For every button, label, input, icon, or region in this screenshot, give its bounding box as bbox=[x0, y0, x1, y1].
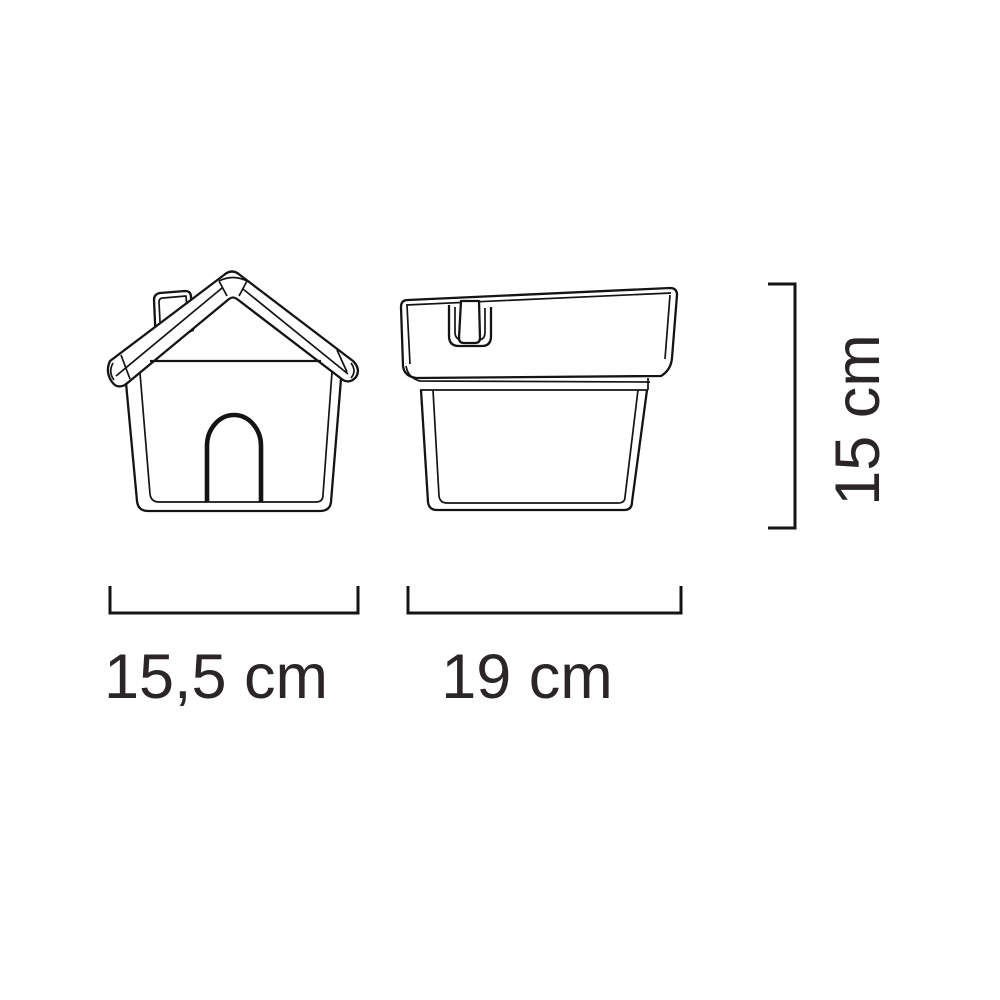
dimension-diagram: 15,5 cm 19 cm 15 cm bbox=[0, 0, 1000, 1000]
height-dimension-line bbox=[768, 284, 795, 528]
front-width-dimension-line bbox=[110, 586, 358, 613]
side-wall bbox=[421, 390, 647, 510]
side-width-label: 19 cm bbox=[441, 642, 613, 712]
line-drawing: 15,5 cm 19 cm 15 cm bbox=[0, 0, 1000, 1000]
side-eave-lines bbox=[420, 378, 648, 390]
height-label: 15 cm bbox=[823, 334, 893, 506]
front-view-drawing bbox=[108, 272, 358, 512]
side-roof-slab bbox=[401, 288, 677, 382]
front-door-opening bbox=[207, 415, 261, 502]
front-width-label: 15,5 cm bbox=[104, 642, 328, 712]
side-width-dimension-line bbox=[408, 586, 681, 613]
side-view-drawing bbox=[401, 288, 677, 510]
front-roof bbox=[108, 272, 358, 387]
front-wall bbox=[126, 361, 341, 511]
